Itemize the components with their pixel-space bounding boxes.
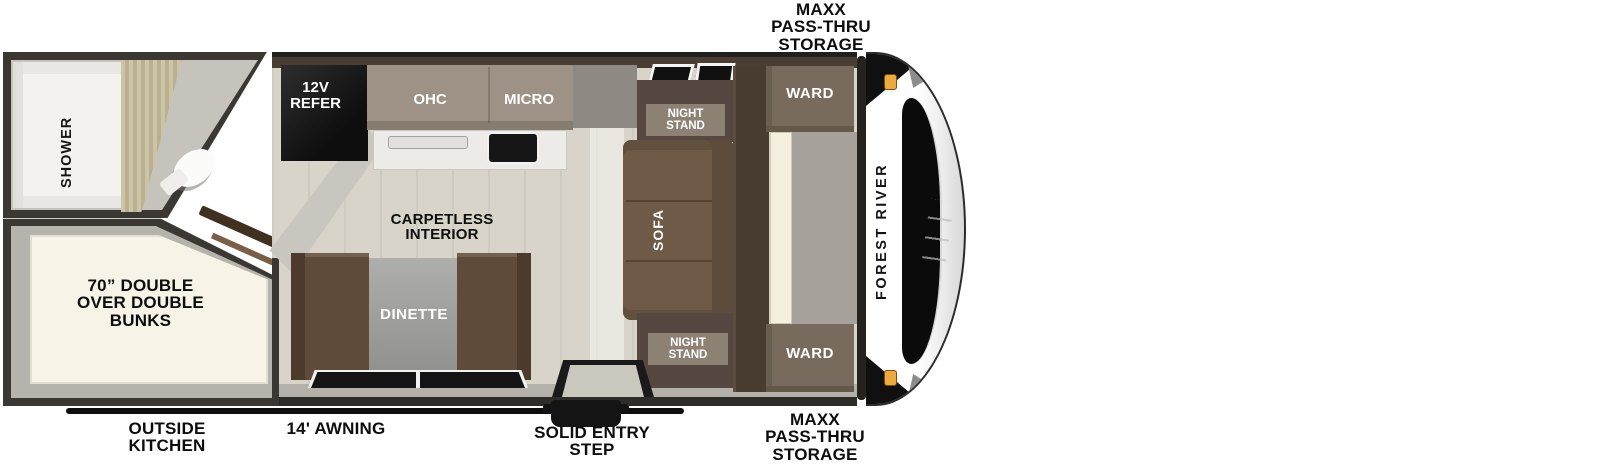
outside-kitchen-label: OUTSIDE KITCHEN: [77, 420, 257, 455]
microwave-label: MICRO: [484, 92, 574, 108]
dinette-bench-right: [457, 253, 531, 380]
wall-segment: [573, 65, 637, 128]
wardrobe-top-label: WARD: [766, 86, 854, 102]
clearance-light: [884, 370, 897, 386]
awning-label: 14' AWNING: [256, 420, 416, 437]
entry-step-label: SOLID ENTRY STEP: [502, 424, 682, 459]
murphy-bed-cabinet: [733, 66, 769, 392]
kitchen-sink: [388, 136, 468, 149]
sofa: [623, 140, 734, 320]
dinette-window-divider: [416, 371, 420, 388]
bunk-room-section: 70” DOUBLE OVER DOUBLE BUNKS: [3, 213, 280, 406]
storage-label-bottom: MAXX PASS-THRU STORAGE: [725, 411, 905, 463]
rv-floorplan-canvas: SHOWER 70” DOUBLE OVER DOUBLE BUNKS 12V …: [0, 0, 1600, 466]
dinette-bench-left: [291, 253, 369, 380]
main-section: 12V REFER OHC MICRO CARPETLESS INTERIOR …: [272, 52, 857, 406]
bunks-label: 70” DOUBLE OVER DOUBLE BUNKS: [33, 277, 248, 329]
carpetless-interior-label: CARPETLESS INTERIOR: [342, 212, 542, 243]
front-wall: [857, 56, 866, 400]
dinette-label: DINETTE: [369, 307, 459, 323]
dinette-end-wall: [272, 258, 279, 406]
night-stand-top-label: NIGHT STAND: [646, 108, 725, 132]
front-bedroom-floor: [792, 132, 857, 324]
cooktop: [487, 132, 539, 164]
wardrobe-bottom-label: WARD: [766, 346, 854, 362]
night-stand-bottom-label: NIGHT STAND: [648, 337, 728, 361]
clearance-light: [884, 74, 897, 90]
overhead-cabinet-label: OHC: [390, 92, 470, 108]
front-cap: FOREST RIVER: [866, 52, 966, 406]
brand-logo: FOREST RIVER: [874, 114, 900, 348]
entry-threshold: [562, 365, 644, 397]
sofa-label: SOFA: [650, 170, 676, 290]
folded-bed-edge: [770, 132, 792, 324]
refrigerator-label: 12V REFER: [272, 80, 359, 112]
shower-label: SHOWER: [59, 92, 89, 212]
storage-label-top: MAXX PASS-THRU STORAGE: [731, 1, 911, 53]
